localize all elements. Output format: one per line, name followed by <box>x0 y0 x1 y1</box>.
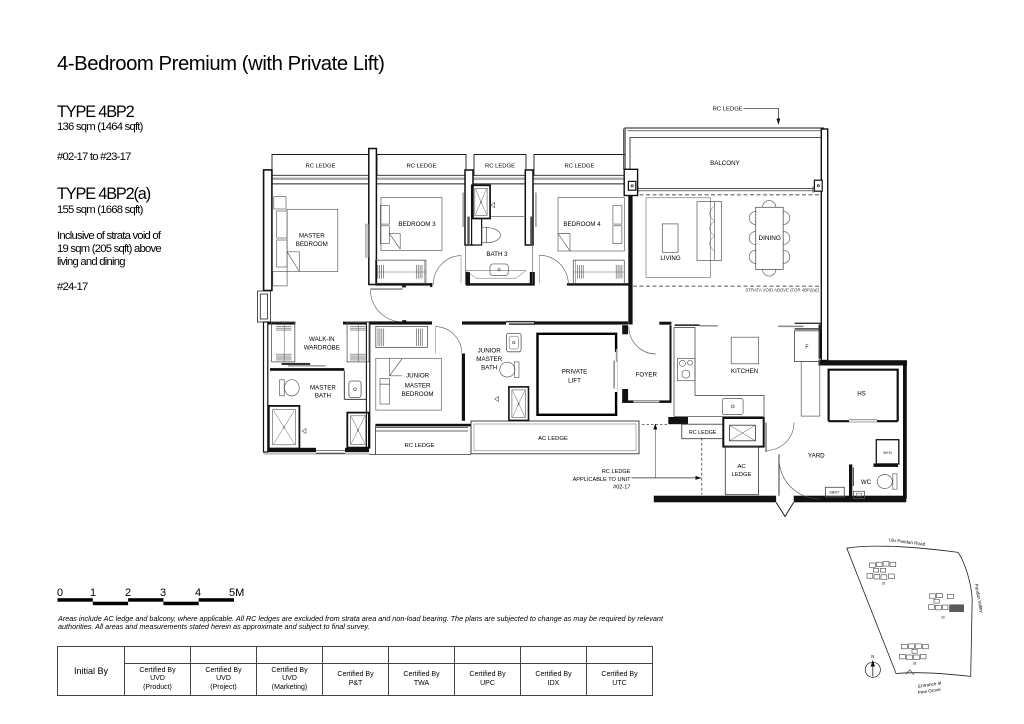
svg-text:DINING: DINING <box>759 235 781 242</box>
svg-text:BATH 3: BATH 3 <box>486 251 508 258</box>
svg-text:FOYER: FOYER <box>636 372 658 379</box>
svg-text:BALCONY: BALCONY <box>710 160 740 167</box>
svg-text:MASTER: MASTER <box>310 385 336 392</box>
svg-text:x: x <box>480 200 482 205</box>
svg-text:BEDROOM: BEDROOM <box>402 391 434 398</box>
svg-text:RC LEDGE: RC LEDGE <box>602 469 631 475</box>
svg-text:MASTER: MASTER <box>299 233 325 240</box>
svg-text:RC LEDGE: RC LEDGE <box>305 164 335 170</box>
svg-text:Pandan Valley: Pandan Valley <box>974 583 985 613</box>
svg-text:26: 26 <box>882 582 886 586</box>
svg-text:RC LEDGE: RC LEDGE <box>564 164 594 170</box>
svg-text:WC: WC <box>861 479 872 486</box>
svg-text:BATH: BATH <box>315 393 331 400</box>
svg-text:BEDROOM 3: BEDROOM 3 <box>398 221 436 228</box>
svg-text:2: 2 <box>125 587 131 599</box>
svg-text:#02-17: #02-17 <box>613 485 630 491</box>
svg-text:AC: AC <box>738 464 747 470</box>
svg-text:x: x <box>518 401 520 406</box>
svg-text:APPLICABLE TO UNIT: APPLICABLE TO UNIT <box>573 477 632 483</box>
svg-text:4: 4 <box>195 587 201 599</box>
svg-text:5M: 5M <box>229 587 244 599</box>
svg-text:BATH: BATH <box>481 365 497 372</box>
svg-text:LEDGE: LEDGE <box>732 472 752 478</box>
svg-text:LIVING: LIVING <box>660 255 680 262</box>
svg-text:RC LEDGE: RC LEDGE <box>713 107 743 113</box>
svg-text:HS: HS <box>857 391 866 398</box>
svg-text:x: x <box>283 425 285 430</box>
svg-text:W+D: W+D <box>883 451 892 455</box>
svg-text:STRATA VOID ABOVE (FOR 4BP2(a): STRATA VOID ABOVE (FOR 4BP2(a)) <box>745 288 819 293</box>
svg-text:F: F <box>805 345 808 351</box>
svg-text:BEDROOM: BEDROOM <box>296 241 328 248</box>
svg-text:0: 0 <box>57 587 63 599</box>
svg-text:3: 3 <box>160 587 166 599</box>
svg-text:RC LEDGE: RC LEDGE <box>404 443 434 449</box>
svg-text:PRIVATE: PRIVATE <box>562 369 588 376</box>
svg-text:x: x <box>357 428 359 433</box>
svg-text:AC LEDGE: AC LEDGE <box>538 436 568 442</box>
svg-text:JUNIOR: JUNIOR <box>478 348 502 355</box>
svg-text:MASTER: MASTER <box>405 382 431 389</box>
svg-text:BEDROOM 4: BEDROOM 4 <box>563 221 601 228</box>
svg-text:RC LEDGE: RC LEDGE <box>689 430 717 436</box>
svg-text:28: 28 <box>913 662 917 666</box>
svg-text:MASTER: MASTER <box>476 356 502 363</box>
svg-text:LIFT: LIFT <box>568 378 581 385</box>
svg-text:JUNIOR: JUNIOR <box>406 372 430 379</box>
svg-text:YARD: YARD <box>808 452 825 459</box>
svg-text:Ulu Pandan Road: Ulu Pandan Road <box>889 537 926 546</box>
svg-text:DB/ST: DB/ST <box>830 490 840 494</box>
svg-text:KITCHEN: KITCHEN <box>731 368 758 375</box>
svg-text:1: 1 <box>90 587 96 599</box>
svg-text:WALK-IN: WALK-IN <box>309 336 335 343</box>
svg-text:RC LEDGE: RC LEDGE <box>485 164 515 170</box>
svg-text:WARDROBE: WARDROBE <box>304 345 340 352</box>
svg-text:N: N <box>871 654 874 659</box>
svg-text:RC LEDGE: RC LEDGE <box>406 164 436 170</box>
